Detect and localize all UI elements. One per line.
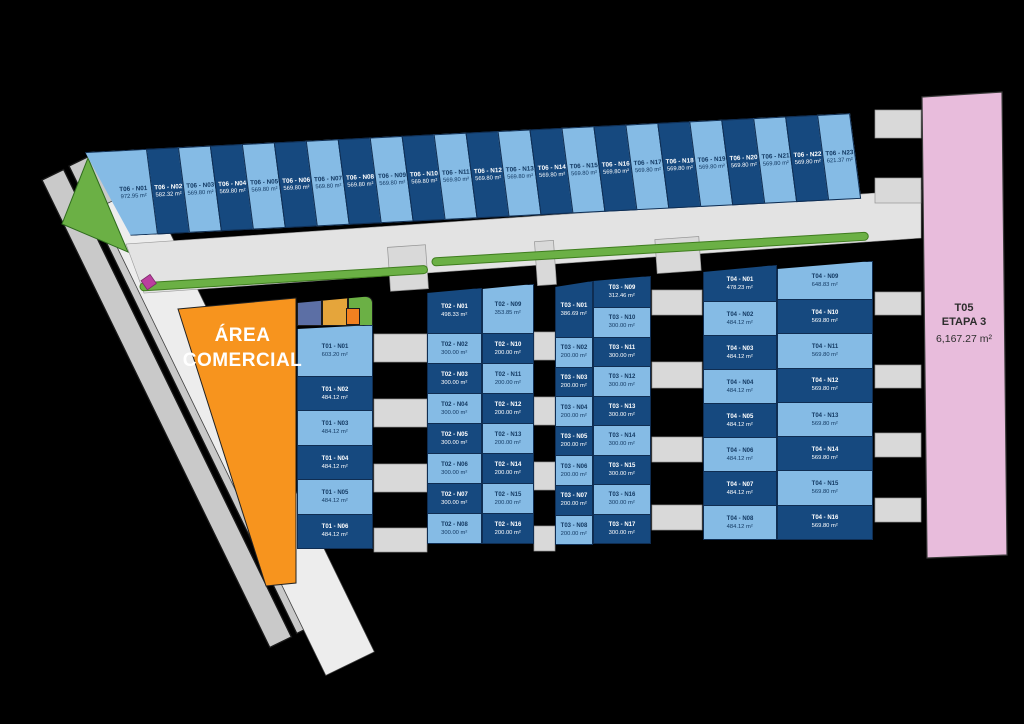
lot-t04-n09[interactable]: T04 - N09648.83 m²: [777, 261, 873, 300]
driveway-pad: [652, 437, 702, 462]
lot-t04-n06[interactable]: T04 - N06484.12 m²: [703, 437, 777, 472]
block-t02_right: T02 - N09353.85 m²T02 - N10200.00 m²T02 …: [482, 284, 534, 544]
lot-t04-n15[interactable]: T04 - N15569.80 m²: [777, 470, 873, 505]
driveway-pad: [875, 110, 921, 138]
lot-t01-n05[interactable]: T01 - N05484.12 m²: [297, 479, 373, 514]
commercial-line2: COMERCIAL: [170, 349, 315, 374]
yellow-block: [322, 296, 348, 326]
driveway-pad: [652, 362, 702, 388]
lot-t03-n07[interactable]: T03 - N07200.00 m²: [555, 485, 593, 516]
lot-t04-n03[interactable]: T04 - N03484.12 m²: [703, 335, 777, 370]
lot-t01-n04[interactable]: T01 - N04484.12 m²: [297, 445, 373, 480]
lot-t02-n07[interactable]: T02 - N07300.00 m²: [427, 483, 482, 514]
lot-t02-n15[interactable]: T02 - N15200.00 m²: [482, 483, 534, 514]
lot-t03-n09[interactable]: T03 - N09312.46 m²: [593, 276, 651, 308]
lot-t03-n02[interactable]: T03 - N02200.00 m²: [555, 337, 593, 368]
lot-t03-n16[interactable]: T03 - N16300.00 m²: [593, 484, 651, 515]
lot-t02-n04[interactable]: T02 - N04300.00 m²: [427, 393, 482, 424]
lot-t03-n15[interactable]: T03 - N15300.00 m²: [593, 455, 651, 486]
commercial-line1: ÁREA: [170, 324, 315, 349]
site-plan-canvas: T06 - N01972.95 m²T06 - N02582.32 m²T06 …: [0, 0, 1024, 724]
lot-t02-n11[interactable]: T02 - N11200.00 m²: [482, 363, 534, 394]
driveway-pad: [875, 365, 921, 388]
lot-t02-n09[interactable]: T02 - N09353.85 m²: [482, 284, 534, 334]
driveway-pad: [652, 290, 702, 315]
lot-t03-n05[interactable]: T03 - N05200.00 m²: [555, 426, 593, 457]
driveway-pad: [652, 505, 702, 530]
lot-t01-n03[interactable]: T01 - N03484.12 m²: [297, 410, 373, 445]
commercial-area-label: ÁREA COMERCIAL: [170, 324, 315, 373]
driveway-pad: [534, 332, 555, 360]
t05-area: 6,167.27 m²: [920, 333, 1008, 345]
lot-t03-n17[interactable]: T03 - N17300.00 m²: [593, 514, 651, 545]
block-t04_left: T04 - N01478.23 m²T04 - N02484.12 m²T04 …: [703, 265, 777, 540]
lot-t02-n12[interactable]: T02 - N12200.00 m²: [482, 393, 534, 424]
block-t03_left: T03 - N01386.69 m²T03 - N02200.00 m²T03 …: [555, 281, 593, 545]
lot-t03-n11[interactable]: T03 - N11300.00 m²: [593, 337, 651, 368]
lot-t03-n10[interactable]: T03 - N10300.00 m²: [593, 307, 651, 338]
lot-t04-n05[interactable]: T04 - N05484.12 m²: [703, 403, 777, 438]
lot-t03-n12[interactable]: T03 - N12300.00 m²: [593, 366, 651, 397]
lot-t02-n02[interactable]: T02 - N02300.00 m²: [427, 333, 482, 364]
lot-t02-n10[interactable]: T02 - N10200.00 m²: [482, 333, 534, 364]
driveway-pad: [534, 526, 555, 551]
lot-t04-n16[interactable]: T04 - N16569.80 m²: [777, 505, 873, 540]
lot-t03-n04[interactable]: T03 - N04200.00 m²: [555, 396, 593, 427]
driveway-pad: [374, 528, 427, 552]
lot-t02-n06[interactable]: T02 - N06300.00 m²: [427, 453, 482, 484]
lot-t02-n01[interactable]: T02 - N01498.33 m²: [427, 288, 482, 334]
t05-name: T05: [920, 302, 1008, 316]
block-t04_right: T04 - N09648.83 m²T04 - N10569.80 m²T04 …: [777, 261, 873, 540]
lot-t04-n13[interactable]: T04 - N13569.80 m²: [777, 402, 873, 437]
lot-t01-n06[interactable]: T01 - N06484.12 m²: [297, 514, 373, 549]
lot-t03-n13[interactable]: T03 - N13300.00 m²: [593, 396, 651, 427]
lot-t03-n01[interactable]: T03 - N01386.69 m²: [555, 281, 593, 338]
lot-t04-n02[interactable]: T04 - N02484.12 m²: [703, 301, 777, 336]
lot-t02-n14[interactable]: T02 - N14200.00 m²: [482, 453, 534, 484]
lot-t02-n05[interactable]: T02 - N05300.00 m²: [427, 423, 482, 454]
lot-t03-n06[interactable]: T03 - N06200.00 m²: [555, 455, 593, 486]
lot-t04-n08[interactable]: T04 - N08484.12 m²: [703, 505, 777, 540]
driveway-pad: [875, 433, 921, 457]
lot-t04-n07[interactable]: T04 - N07484.12 m²: [703, 471, 777, 506]
driveway-pad: [875, 498, 921, 522]
driveway-pad: [534, 462, 555, 490]
lot-t02-n16[interactable]: T02 - N16200.00 m²: [482, 513, 534, 544]
lot-t03-n03[interactable]: T03 - N03200.00 m²: [555, 367, 593, 398]
t05-stage: ETAPA 3: [920, 316, 1008, 330]
block-t02_left: T02 - N01498.33 m²T02 - N02300.00 m²T02 …: [427, 288, 482, 544]
driveway-pad: [875, 292, 921, 315]
lot-t03-n14[interactable]: T03 - N14300.00 m²: [593, 425, 651, 456]
lot-t04-n01[interactable]: T04 - N01478.23 m²: [703, 265, 777, 302]
lot-t04-n14[interactable]: T04 - N14569.80 m²: [777, 436, 873, 471]
driveway-pad: [374, 399, 427, 427]
lot-t04-n11[interactable]: T04 - N11569.80 m²: [777, 333, 873, 368]
lot-t04-n12[interactable]: T04 - N12569.80 m²: [777, 368, 873, 403]
lot-t03-n08[interactable]: T03 - N08200.00 m²: [555, 515, 593, 546]
lot-t02-n03[interactable]: T02 - N03300.00 m²: [427, 363, 482, 394]
driveway-pad: [534, 240, 556, 285]
lot-t04-n04[interactable]: T04 - N04484.12 m²: [703, 369, 777, 404]
t05-label: T05 ETAPA 3 6,167.27 m²: [920, 302, 1008, 345]
lot-t02-n13[interactable]: T02 - N13200.00 m²: [482, 423, 534, 454]
orange-block: [346, 308, 360, 325]
lot-t02-n08[interactable]: T02 - N08300.00 m²: [427, 513, 482, 544]
lot-t04-n10[interactable]: T04 - N10569.80 m²: [777, 299, 873, 334]
driveway-pad: [374, 334, 427, 362]
driveway-pad: [534, 397, 555, 425]
driveway-pad: [374, 464, 427, 492]
lot-t01-n02[interactable]: T01 - N02484.12 m²: [297, 376, 373, 411]
block-t03_right: T03 - N09312.46 m²T03 - N10300.00 m²T03 …: [593, 276, 651, 544]
lot-t06-n01[interactable]: T06 - N01972.95 m²: [85, 149, 158, 238]
